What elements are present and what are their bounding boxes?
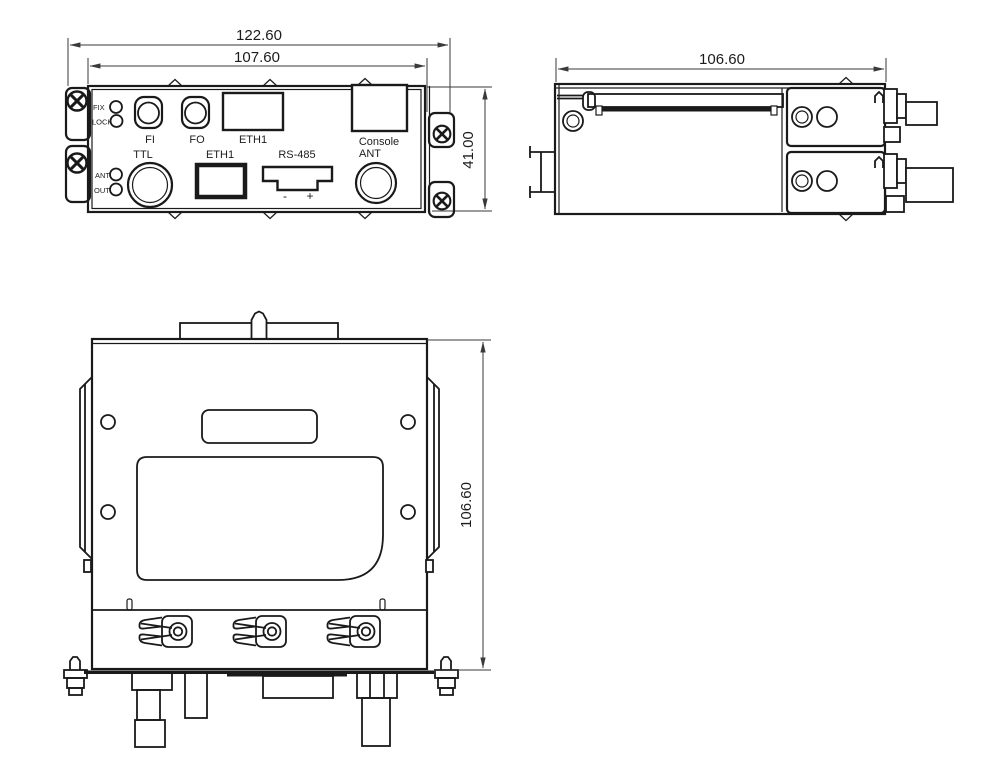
fiber-port-fi	[135, 97, 162, 128]
side-view: 106.60	[530, 51, 953, 221]
phillips-screw-icon	[68, 92, 87, 111]
rs485-terminal	[263, 167, 332, 190]
dimension-text-bottom-height: 106.60	[458, 482, 475, 528]
led-label-out: OUT	[94, 186, 110, 195]
dimension-text-height: 41.00	[460, 131, 477, 169]
label-recess	[202, 410, 317, 443]
side-hole	[563, 111, 583, 131]
bottom-connector-coax	[132, 673, 172, 747]
technical-drawing-page: 122.60 107.60 41.00 FIX	[0, 0, 1000, 771]
port-label-console: Console	[359, 136, 399, 148]
rs485-minus-mark: -	[283, 189, 287, 203]
led-label-lock: LOCK	[92, 118, 112, 127]
side-lower-connector-panel	[787, 152, 885, 213]
din-rail-profile	[557, 92, 783, 115]
screw-hole	[101, 415, 115, 429]
dimension-text-depth: 106.60	[699, 51, 745, 68]
fiber-port-fo	[182, 97, 209, 128]
band-tab	[127, 599, 132, 610]
front-view: 122.60 107.60 41.00 FIX	[66, 27, 492, 219]
led-fix	[110, 101, 122, 113]
bottom-body	[92, 339, 427, 669]
port-label-ant: ANT	[359, 148, 381, 160]
din-clip	[234, 616, 287, 647]
phillips-screw-icon	[434, 193, 451, 210]
side-left-bracket	[530, 146, 555, 198]
screw-hole	[101, 505, 115, 519]
dimension-text-overall-width: 122.60	[236, 27, 282, 44]
ttl-port	[128, 163, 172, 207]
led-ant	[110, 169, 122, 181]
dimension-height: 41.00	[427, 87, 492, 211]
led-out	[110, 184, 122, 196]
ant-port	[356, 163, 396, 203]
screw-hole	[401, 415, 415, 429]
console-port	[352, 85, 407, 131]
port-label-eth1-bottom: ETH1	[206, 149, 234, 161]
port-label-fi: FI	[145, 134, 155, 146]
din-clip	[328, 616, 381, 647]
led-label-ant: ANT	[95, 171, 110, 180]
side-lower-connector-stack	[875, 154, 953, 212]
bottom-connector-dsub	[227, 673, 347, 699]
dimension-text-panel-width: 107.60	[234, 49, 280, 66]
band-tab	[380, 599, 385, 610]
port-label-ttl: TTL	[133, 149, 153, 161]
screw-hole	[401, 505, 415, 519]
port-label-rs485: RS-485	[278, 149, 315, 161]
left-side-rail	[80, 377, 92, 572]
corner-bolt	[435, 657, 458, 695]
rs485-plus-mark: +	[306, 189, 313, 203]
dimension-bottom-height: 106.60	[427, 340, 491, 670]
eth1-port-bottom	[197, 165, 245, 197]
din-clip	[140, 616, 193, 647]
phillips-screw-icon	[434, 126, 451, 143]
corner-bolt	[64, 657, 87, 695]
side-upper-connector-stack	[875, 89, 937, 142]
led-indicators: FIX LOCK ANT OUT	[92, 101, 123, 196]
eth1-port-top	[223, 93, 283, 130]
phillips-screw-icon	[68, 154, 87, 173]
dimension-depth: 106.60	[556, 51, 886, 82]
port-label-eth1-top: ETH1	[239, 134, 267, 146]
bottom-connector-power	[357, 673, 397, 746]
bottom-view: 106.60	[64, 312, 491, 748]
side-upper-connector-panel	[787, 88, 885, 146]
top-center-latch	[252, 312, 267, 341]
technical-drawing-canvas: 122.60 107.60 41.00 FIX	[0, 0, 1000, 771]
bottom-connector-small	[185, 673, 207, 718]
port-label-fo: FO	[189, 134, 205, 146]
cover-recess	[137, 457, 383, 580]
led-label-fix: FIX	[93, 103, 105, 112]
